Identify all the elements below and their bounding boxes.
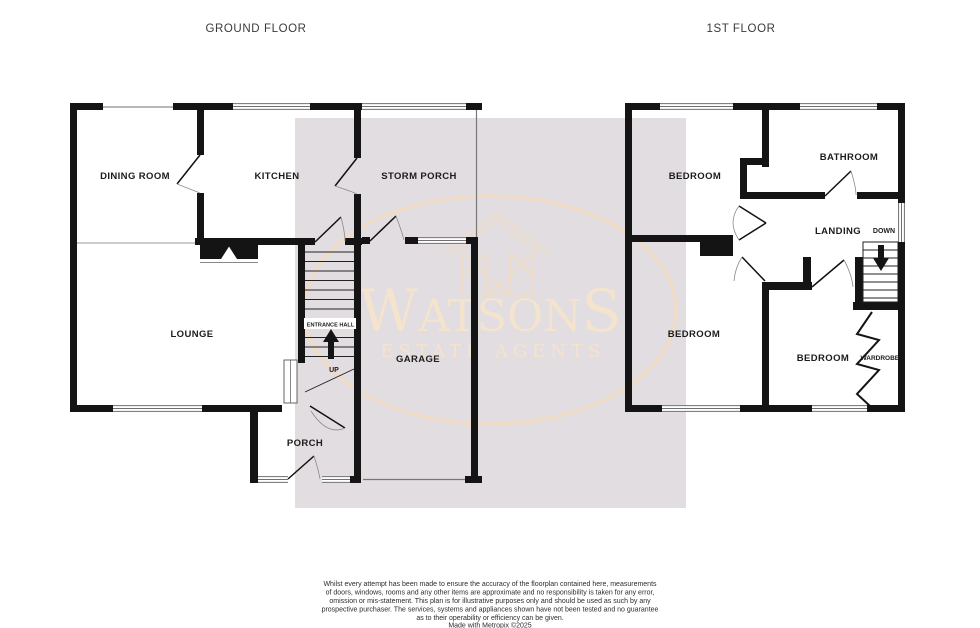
- disclaimer-line: Made with Metropix ©2025: [448, 622, 531, 628]
- room-label-bedroom-front: BEDROOM: [669, 171, 721, 182]
- room-label-porch: PORCH: [287, 438, 323, 449]
- disclaimer-line: Whilst every attempt has been made to en…: [323, 581, 657, 588]
- disclaimer-line: as to their operability or efficiency ca…: [416, 615, 563, 622]
- stairs-up-label: UP: [329, 367, 339, 374]
- room-label-landing: LANDING: [815, 226, 861, 237]
- room-label-dining-room: DINING ROOM: [100, 171, 170, 182]
- disclaimer-line: prospective purchaser. The services, sys…: [322, 607, 659, 614]
- stairs-down-label: DOWN: [873, 228, 895, 235]
- room-label-bedroom-back: BEDROOM: [668, 329, 720, 340]
- disclaimer-line: omission or mis-statement. This plan is …: [329, 598, 651, 605]
- room-label-storm-porch: STORM PORCH: [381, 171, 456, 182]
- room-label-wardrobe: WARDROBE: [861, 355, 900, 362]
- room-label-bedroom-third: BEDROOM: [797, 353, 849, 364]
- room-label-lounge: LOUNGE: [170, 329, 213, 340]
- floorplan-svg: GROUND FLOOR 1ST FLOOR WATSONS ESTATE AG…: [0, 0, 980, 628]
- floorplan-page: GROUND FLOOR 1ST FLOOR WATSONS ESTATE AG…: [0, 0, 980, 628]
- room-label-kitchen: KITCHEN: [254, 171, 299, 182]
- disclaimer: Whilst every attempt has been made to en…: [322, 581, 659, 628]
- first-floor-right-wall: [898, 242, 905, 412]
- room-label-bathroom: BATHROOM: [820, 152, 878, 163]
- room-label-entrance-hall: ENTRANCE HALL: [307, 323, 355, 329]
- ground-floor-title: GROUND FLOOR: [205, 23, 306, 35]
- first-floor-stairs: [863, 242, 898, 302]
- disclaimer-line: of doors, windows, rooms and any other i…: [326, 590, 655, 597]
- first-floor-title: 1ST FLOOR: [706, 23, 775, 35]
- room-label-garage: GARAGE: [396, 354, 440, 365]
